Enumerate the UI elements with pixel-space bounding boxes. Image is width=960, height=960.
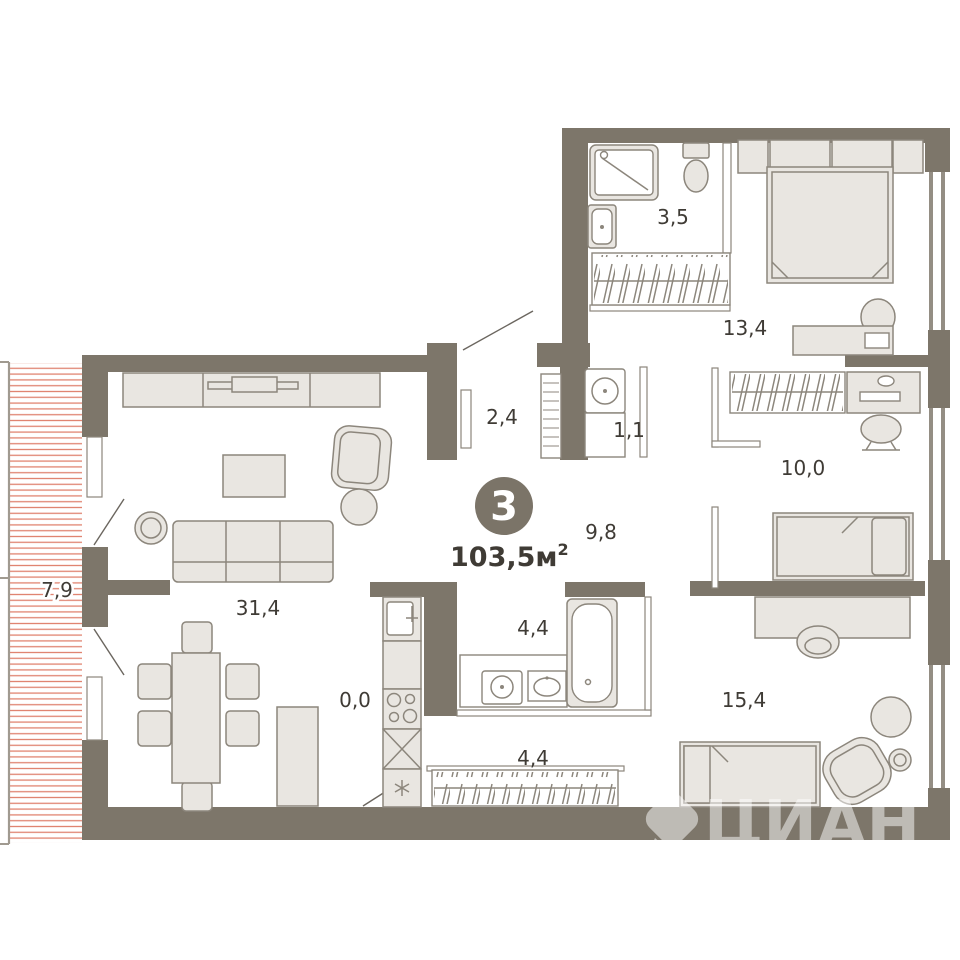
dining-table <box>172 653 220 783</box>
sofa <box>173 521 333 582</box>
dining-chair <box>182 782 212 811</box>
room-area-label: 7,9 <box>41 578 73 602</box>
dining-chair <box>138 711 171 746</box>
room-area-label: 3,5 <box>657 205 689 229</box>
dining-chair <box>226 711 259 746</box>
window-bedroom-master <box>927 172 948 330</box>
window-bedroom-middle <box>927 408 948 560</box>
floor-plan: 7,9 31,4 0,0 2,4 1,1 9,8 3,5 13,4 10,0 4… <box>0 0 960 960</box>
utility-riser <box>541 374 561 458</box>
dining-chair <box>226 664 259 699</box>
side-table <box>889 749 911 771</box>
summary: 3 103,5м2 <box>450 477 569 573</box>
balcony-hatch <box>10 363 82 843</box>
room-area-label: 0,0 <box>339 688 371 712</box>
stove <box>383 689 421 729</box>
dishwasher <box>383 729 421 769</box>
washing-machine <box>482 671 522 704</box>
total-area-unit: м <box>535 542 557 573</box>
room-area-label: 10,0 <box>781 456 826 480</box>
room-area-label: 2,4 <box>486 405 518 429</box>
balcony-door-swing-upper <box>94 499 124 545</box>
pouf <box>341 489 377 525</box>
windows <box>927 172 948 788</box>
shower-cabin <box>590 145 658 200</box>
dining-set <box>138 622 259 811</box>
balcony-door-swing-lower <box>94 629 124 675</box>
dining-chair <box>182 622 212 653</box>
sink-shower-room <box>588 205 616 248</box>
total-area-label: 103,5м2 <box>450 540 569 573</box>
bathroom-sink <box>528 671 566 701</box>
single-bed-middle <box>773 513 913 580</box>
kitchen-sink <box>383 597 421 641</box>
room-area-label: 15,4 <box>722 688 767 712</box>
pillow <box>872 518 906 575</box>
room-area-label: 31,4 <box>236 596 281 620</box>
cian-watermark: ЦИАН <box>641 788 920 862</box>
wardrobe-hangers-hall <box>592 253 730 305</box>
wardrobe-bottom <box>432 770 618 806</box>
floor-plan-image: 7,9 31,4 0,0 2,4 1,1 9,8 3,5 13,4 10,0 4… <box>0 0 960 960</box>
bedroom-large-furniture <box>680 597 911 812</box>
entry-door-swing <box>463 311 533 350</box>
bathtub <box>567 599 617 707</box>
armchair <box>330 425 392 492</box>
room-area-label: 4,4 <box>517 616 549 640</box>
toilet <box>683 143 709 192</box>
coffee-table <box>223 455 285 497</box>
kitchen-units <box>383 597 421 807</box>
room-area-label: 1,1 <box>613 418 645 442</box>
total-area-value: 103,5 <box>450 542 535 573</box>
desk-master <box>793 326 893 355</box>
nightstand <box>893 140 923 173</box>
rooms-count: 3 <box>490 484 518 530</box>
room-area-label: 9,8 <box>585 520 617 544</box>
fridge <box>383 769 421 807</box>
pouf-large <box>871 697 911 737</box>
total-area-sup: 2 <box>557 540 568 559</box>
room-area-label: 4,4 <box>517 746 549 770</box>
nightstand <box>738 140 768 173</box>
wardrobe-hangers-middle <box>730 372 845 413</box>
watermark-text: ЦИАН <box>704 788 920 862</box>
desk-middle <box>847 372 920 413</box>
bench-island <box>277 707 318 806</box>
kitchen-cabinet <box>383 641 421 689</box>
dining-chair <box>138 664 171 699</box>
desk-chair-large <box>797 626 839 658</box>
balcony <box>0 362 82 844</box>
room-area-label: 13,4 <box>723 316 768 340</box>
side-pouf <box>135 512 167 544</box>
tv-console <box>123 373 380 407</box>
window-bedroom-large <box>927 665 948 788</box>
radiator <box>461 390 471 448</box>
balcony-door-lower <box>87 677 102 740</box>
washing-machine-laundry <box>585 369 625 413</box>
balcony-door-upper <box>87 437 102 497</box>
double-bed <box>738 140 923 283</box>
desk-chair-middle <box>861 415 901 450</box>
